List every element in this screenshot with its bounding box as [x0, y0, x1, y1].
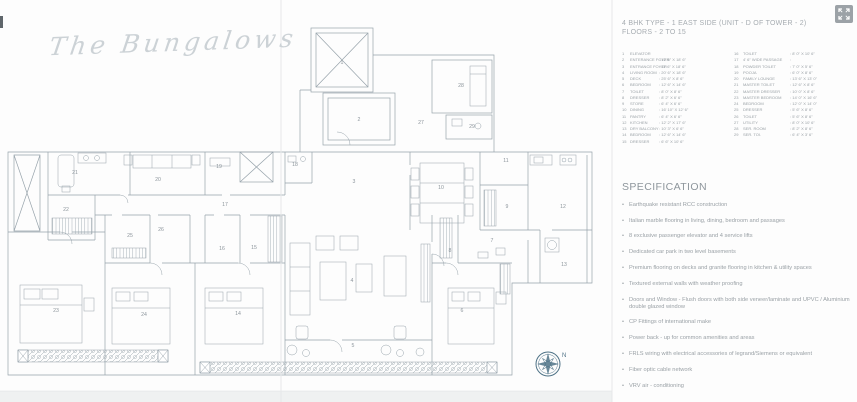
legend-room-dims: : 6' 4" X 3' 6" — [790, 132, 844, 138]
specification-item: • VRV air - conditioning — [622, 383, 854, 390]
room-number-label: 11 — [503, 158, 508, 164]
specification-item: • Premium flooring on decks and granite … — [622, 265, 854, 272]
bullet-icon: • — [622, 233, 624, 240]
bullet-icon: • — [622, 249, 624, 256]
bullet-icon: • — [622, 367, 624, 374]
legend-room-dims: : 6' 6" X 10' 6" — [659, 139, 721, 145]
bullet-icon: • — [622, 265, 624, 272]
legend-row: 29 SER. TOI. : 6' 4" X 3' 6" — [734, 132, 844, 138]
store-shelves — [484, 190, 496, 226]
specification-item: • Textured external walls with weather p… — [622, 281, 854, 288]
wardrobe-15 — [268, 216, 282, 262]
kitchen-counters — [530, 155, 576, 165]
room-number-label: 17 — [222, 202, 228, 208]
room-number-label: 21 — [72, 170, 78, 176]
room-number-label: 28 — [458, 83, 464, 89]
room-number-label: 2 — [358, 117, 361, 123]
compass-north-label: N — [562, 353, 566, 359]
floor-plan: N 12345678910111213141516171819202122232… — [0, 0, 615, 402]
wardrobe-6 — [500, 264, 510, 294]
room-number-label: 19 — [216, 164, 222, 170]
bed-service-28 — [470, 66, 486, 106]
room-number-label: 5 — [352, 343, 355, 349]
room-number-label: 18 — [292, 162, 298, 168]
page-edge-mark — [0, 16, 3, 28]
bullet-icon: • — [622, 351, 624, 358]
bullet-icon: • — [622, 383, 624, 390]
room-number-label: 26 — [158, 227, 164, 233]
room-number-label: 3 — [353, 179, 356, 185]
bullet-icon: • — [622, 281, 624, 288]
deck-hatch — [18, 350, 497, 373]
info-panel: 4 BHK TYPE - 1 EAST SIDE (UNIT - D OF TO… — [622, 0, 854, 398]
room-number-label: 24 — [141, 312, 147, 318]
bullet-icon: • — [622, 297, 624, 311]
legend-room-name: DRESSER — [630, 139, 659, 145]
room-number-label: 23 — [53, 308, 59, 314]
family-lounge-sofa — [124, 155, 200, 168]
specification-item: • 8 exclusive passenger elevator and 4 s… — [622, 233, 854, 240]
legend-column-2: 16 TOILET : 8' 0" X 10' 6" 17 4' 6" WIDE… — [734, 51, 844, 145]
room-number-label: 22 — [63, 207, 69, 213]
unit-title-line2: FLOORS - 2 TO 15 — [622, 28, 854, 37]
brochure-page: N 12345678910111213141516171819202122232… — [0, 0, 857, 402]
living-room-sofa-set — [290, 236, 430, 315]
room-number-label: 10 — [438, 185, 444, 191]
bullet-icon: • — [622, 335, 624, 342]
legend-column-1: 1 ELEVATOR 2 ENTERANCE FOYER : 12' 6" X … — [622, 51, 721, 145]
toilet-7-basin — [478, 252, 488, 258]
bullet-icon: • — [622, 202, 624, 209]
room-number-label: 13 — [561, 262, 567, 268]
plan-furniture — [20, 66, 576, 357]
ser-toi-basin — [475, 123, 481, 129]
legend-room-name: SER. TOI. — [743, 132, 790, 138]
room-number-label: 6 — [461, 308, 464, 314]
room-number-label: 25 — [127, 233, 133, 239]
room-number-label: 8 — [449, 248, 452, 254]
room-number-label: 12 — [560, 204, 566, 210]
specification-list: • Earthquake resistant RCC construction … — [622, 202, 854, 390]
room-number-label: 16 — [219, 246, 225, 252]
specification-item: • FRLS wiring with electrical accessorie… — [622, 351, 854, 358]
dining-table — [411, 163, 473, 223]
specification-item: • Earthquake resistant RCC construction — [622, 202, 854, 209]
room-number-label: 29 — [469, 124, 475, 130]
toilet-7-wc — [496, 248, 505, 255]
legend-room-number: 29 — [734, 132, 743, 138]
legend-row: 15 DRESSER : 6' 6" X 10' 6" — [622, 139, 721, 145]
specification-item: • CP Fittings of international make — [622, 319, 854, 326]
floor-plan-area: N 12345678910111213141516171819202122232… — [0, 0, 615, 402]
specification-heading: SPECIFICATION — [622, 181, 854, 193]
wardrobe-22 — [52, 218, 92, 234]
expand-arrows-icon — [838, 8, 850, 20]
unit-title-line1: 4 BHK TYPE - 1 EAST SIDE (UNIT - D OF TO… — [622, 19, 854, 28]
master-toilet-fixtures — [58, 153, 106, 192]
specification-item: • Fiber optic cable network — [622, 367, 854, 374]
bed-6 — [448, 288, 506, 344]
powder-toilet-basin — [301, 157, 306, 162]
room-number-label: 27 — [418, 120, 424, 126]
page-bottom-strip — [0, 391, 612, 402]
room-number-label: 15 — [251, 245, 257, 251]
unit-title: 4 BHK TYPE - 1 EAST SIDE (UNIT - D OF TO… — [622, 19, 854, 37]
bullet-icon: • — [622, 319, 624, 326]
specification-item: • Doors and Window - Flush doors with bo… — [622, 297, 854, 311]
deck-planters — [287, 326, 424, 357]
room-number-label: 14 — [235, 311, 241, 317]
legend-room-number: 15 — [622, 139, 630, 145]
room-number-label: 20 — [155, 177, 161, 183]
room-legend: 1 ELEVATOR 2 ENTERANCE FOYER : 12' 6" X … — [622, 51, 854, 145]
wardrobe-25 — [112, 248, 146, 258]
room-number-label: 7 — [491, 238, 494, 244]
dry-balcony-washer — [545, 238, 559, 252]
fullscreen-button[interactable] — [835, 5, 853, 23]
specification-section: SPECIFICATION • Earthquake resistant RCC… — [622, 181, 854, 390]
bullet-icon: • — [622, 218, 624, 225]
room-number-label: 4 — [351, 278, 354, 284]
specification-item: • Italian marble flooring in living, din… — [622, 218, 854, 225]
room-number-label: 1 — [341, 60, 344, 66]
bed-master-23 — [20, 285, 94, 343]
room-number-label: 9 — [506, 204, 509, 210]
specification-item: • Power back - up for common amenities a… — [622, 335, 854, 342]
compass-rose-icon: N — [536, 352, 566, 376]
bed-14 — [205, 288, 263, 344]
ser-toi-fixture — [452, 119, 462, 126]
plan-walls — [8, 28, 592, 375]
specification-item: • Dedicated car park in two level baseme… — [622, 249, 854, 256]
